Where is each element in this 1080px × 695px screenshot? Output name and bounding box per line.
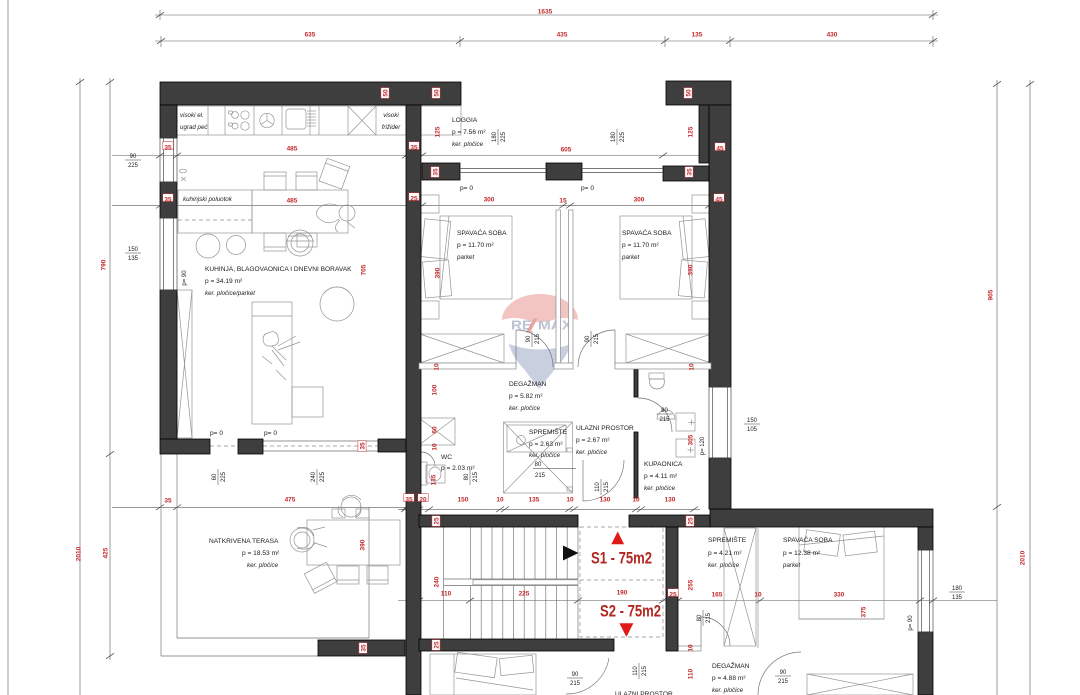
svg-text:60: 60 — [212, 473, 218, 480]
svg-text:180: 180 — [492, 131, 498, 142]
svg-text:135: 135 — [128, 256, 139, 262]
svg-text:225: 225 — [519, 590, 530, 597]
svg-text:50: 50 — [433, 89, 440, 97]
svg-text:25: 25 — [687, 517, 694, 525]
svg-text:150: 150 — [128, 247, 139, 253]
svg-text:10: 10 — [433, 363, 440, 371]
svg-text:300: 300 — [634, 196, 645, 203]
svg-text:p = 18.53 m²: p = 18.53 m² — [242, 550, 280, 557]
svg-text:p = 7.56 m²: p = 7.56 m² — [452, 129, 486, 136]
svg-text:45: 45 — [716, 145, 724, 152]
svg-text:KUPAONICA: KUPAONICA — [644, 461, 683, 468]
svg-text:ker. pločice: ker. pločice — [576, 449, 608, 456]
svg-text:35: 35 — [360, 644, 367, 652]
svg-text:390: 390 — [434, 267, 441, 278]
svg-text:2010: 2010 — [75, 546, 82, 561]
svg-text:180: 180 — [611, 131, 617, 142]
svg-text:215: 215 — [604, 481, 610, 492]
svg-text:150: 150 — [458, 496, 469, 503]
svg-text:105: 105 — [747, 427, 758, 433]
svg-text:DEGAŽMAN: DEGAŽMAN — [509, 379, 547, 388]
svg-text:80: 80 — [697, 614, 703, 621]
svg-text:330: 330 — [834, 591, 845, 598]
svg-text:20: 20 — [419, 496, 427, 503]
svg-text:10: 10 — [632, 496, 640, 503]
svg-text:10: 10 — [754, 591, 762, 598]
svg-text:50: 50 — [685, 89, 692, 97]
svg-text:35: 35 — [164, 144, 172, 151]
svg-text:225: 225 — [620, 131, 626, 142]
svg-text:110: 110 — [687, 668, 694, 679]
svg-text:215: 215 — [535, 473, 546, 479]
svg-text:90: 90 — [585, 335, 591, 342]
svg-text:35: 35 — [359, 442, 366, 450]
svg-text:ker. pločice: ker. pločice — [644, 485, 676, 492]
svg-text:NATKRIVENA TERASA: NATKRIVENA TERASA — [209, 538, 279, 545]
svg-text:SPAVAĆA SOBA: SPAVAĆA SOBA — [622, 228, 672, 237]
svg-text:p = 11.70 m²: p = 11.70 m² — [622, 242, 660, 249]
svg-text:visoki: visoki — [383, 112, 399, 119]
svg-text:90: 90 — [780, 670, 787, 676]
svg-text:90: 90 — [572, 672, 579, 678]
svg-text:135: 135 — [430, 474, 437, 485]
svg-text:390: 390 — [359, 539, 366, 550]
svg-text:DEGAŽMAN: DEGAŽMAN — [712, 661, 750, 670]
svg-text:100: 100 — [431, 384, 438, 395]
svg-text:p = 4.21 m²: p = 4.21 m² — [708, 550, 742, 557]
svg-text:215: 215 — [594, 333, 600, 344]
svg-text:125: 125 — [434, 126, 441, 137]
svg-text:p= 0: p= 0 — [581, 185, 594, 192]
svg-text:35: 35 — [405, 496, 413, 503]
svg-text:S1 - 75m2: S1 - 75m2 — [591, 550, 652, 568]
svg-text:35: 35 — [686, 168, 693, 176]
svg-text:ker. pločice/parket: ker. pločice/parket — [205, 290, 255, 297]
svg-text:905: 905 — [987, 289, 994, 300]
svg-text:ugrad peć: ugrad peć — [180, 124, 208, 131]
svg-text:110: 110 — [633, 666, 639, 676]
svg-text:485: 485 — [287, 145, 298, 152]
svg-text:190: 190 — [617, 589, 628, 596]
svg-text:ker. pločice: ker. pločice — [509, 405, 541, 412]
svg-text:frižider: frižider — [382, 124, 402, 131]
svg-text:110: 110 — [441, 590, 452, 597]
svg-text:375: 375 — [860, 606, 867, 617]
svg-text:ULAZNI PROSTOR: ULAZNI PROSTOR — [615, 691, 673, 695]
svg-text:p= 0: p= 0 — [460, 185, 473, 192]
svg-text:135: 135 — [692, 31, 703, 38]
svg-text:ULAZNI PROSTOR: ULAZNI PROSTOR — [576, 425, 634, 432]
svg-text:215: 215 — [778, 679, 789, 685]
svg-text:305: 305 — [687, 434, 694, 445]
svg-text:25: 25 — [669, 591, 677, 598]
svg-text:90: 90 — [130, 154, 137, 160]
svg-text:225: 225 — [501, 131, 507, 142]
svg-text:425: 425 — [102, 547, 109, 558]
svg-text:SPREMIŠTE: SPREMIŠTE — [708, 535, 747, 544]
svg-text:ker. pločice: ker. pločice — [708, 562, 740, 569]
svg-text:150: 150 — [747, 418, 758, 424]
svg-text:215: 215 — [535, 333, 541, 344]
svg-text:10: 10 — [688, 363, 695, 371]
svg-text:35: 35 — [164, 196, 172, 203]
svg-text:ker. pločice: ker. pločice — [247, 562, 279, 569]
svg-text:p = 5.82 m²: p = 5.82 m² — [509, 393, 543, 400]
svg-text:435: 435 — [557, 31, 568, 38]
svg-text:90: 90 — [526, 335, 532, 342]
svg-text:215: 215 — [642, 665, 648, 676]
svg-text:705: 705 — [360, 264, 367, 275]
svg-text:180: 180 — [952, 586, 963, 592]
svg-text:790: 790 — [100, 259, 107, 270]
svg-text:60: 60 — [431, 426, 438, 434]
svg-text:215: 215 — [473, 471, 479, 482]
svg-text:635: 635 — [305, 31, 316, 38]
svg-text:240: 240 — [311, 471, 317, 482]
svg-text:SPAVAĆA SOBA: SPAVAĆA SOBA — [783, 535, 833, 544]
svg-text:parket: parket — [456, 254, 474, 261]
svg-text:110: 110 — [595, 482, 601, 492]
svg-text:kuhinjski poluotok: kuhinjski poluotok — [183, 196, 233, 203]
svg-text:300: 300 — [484, 196, 495, 203]
svg-text:485: 485 — [287, 197, 298, 204]
svg-text:35: 35 — [410, 144, 418, 151]
svg-text:visoki el.: visoki el. — [180, 112, 204, 119]
svg-text:p = 4.11 m²: p = 4.11 m² — [644, 473, 678, 480]
svg-text:MAX: MAX — [538, 318, 572, 333]
svg-text:LOGGIA: LOGGIA — [452, 117, 478, 124]
svg-text:25: 25 — [410, 195, 418, 202]
svg-text:1635: 1635 — [538, 8, 553, 15]
svg-text:parket: parket — [621, 254, 639, 261]
svg-text:ker. pločice: ker. pločice — [712, 687, 744, 694]
svg-text:2010: 2010 — [1019, 550, 1026, 565]
svg-text:25: 25 — [433, 641, 440, 649]
svg-text:10: 10 — [566, 496, 574, 503]
svg-text:225: 225 — [320, 471, 326, 482]
svg-text:15: 15 — [559, 197, 567, 204]
svg-text:80: 80 — [535, 462, 542, 468]
svg-text:35: 35 — [432, 168, 439, 176]
svg-text:p = 4.88 m²: p = 4.88 m² — [712, 675, 746, 682]
svg-text:WC: WC — [441, 454, 452, 461]
svg-text:215: 215 — [570, 681, 581, 687]
svg-text:225: 225 — [221, 471, 227, 482]
svg-text:p = 34.19 m²: p = 34.19 m² — [205, 278, 243, 285]
svg-text:p= 90: p= 90 — [908, 615, 914, 631]
svg-text:165: 165 — [712, 591, 723, 598]
svg-text:390: 390 — [687, 264, 694, 275]
svg-text:130: 130 — [665, 496, 676, 503]
svg-text:125: 125 — [687, 126, 694, 137]
svg-text:255: 255 — [687, 579, 694, 590]
svg-text:p = 2.67 m²: p = 2.67 m² — [576, 437, 610, 444]
svg-text:ker. pločice: ker. pločice — [529, 452, 561, 459]
svg-text:p = 11.70 m²: p = 11.70 m² — [457, 242, 495, 249]
svg-text:80: 80 — [464, 473, 470, 480]
svg-text:215: 215 — [659, 417, 670, 423]
svg-text:135: 135 — [952, 595, 963, 601]
svg-text:p= 0: p= 0 — [210, 430, 223, 437]
svg-text:430: 430 — [827, 31, 838, 38]
svg-text:135: 135 — [529, 496, 540, 503]
svg-text:80: 80 — [661, 408, 668, 414]
svg-text:215: 215 — [706, 612, 712, 623]
svg-text:605: 605 — [561, 146, 572, 153]
svg-text:ker. pločice: ker. pločice — [452, 141, 484, 148]
svg-text:10: 10 — [687, 644, 694, 652]
svg-text:p = 2.63 m²: p = 2.63 m² — [529, 441, 563, 448]
svg-text:240: 240 — [433, 576, 440, 587]
svg-text:475: 475 — [285, 496, 296, 503]
svg-text:SPAVAĆA SOBA: SPAVAĆA SOBA — [457, 228, 507, 237]
svg-text:parket: parket — [782, 562, 800, 569]
svg-text:45: 45 — [715, 196, 723, 203]
svg-text:10: 10 — [496, 496, 504, 503]
svg-text:S2 - 75m2: S2 - 75m2 — [600, 603, 661, 621]
svg-text:SPREMIŠTE: SPREMIŠTE — [529, 427, 568, 436]
svg-text:p= 90: p= 90 — [182, 270, 188, 286]
svg-text:50: 50 — [382, 89, 389, 97]
svg-text:p= 0: p= 0 — [264, 430, 277, 437]
svg-text:p= 120: p= 120 — [700, 436, 706, 455]
svg-text:225: 225 — [128, 163, 139, 169]
svg-text:KUHINJA, BLAGOVAONICA I DNEVNI: KUHINJA, BLAGOVAONICA I DNEVNI BORAVAK — [205, 266, 352, 273]
svg-text:10: 10 — [431, 443, 438, 451]
svg-text:p = 12.38 m²: p = 12.38 m² — [783, 550, 821, 557]
svg-text:25: 25 — [433, 517, 440, 525]
svg-text:35: 35 — [164, 497, 172, 504]
svg-text:130: 130 — [600, 496, 611, 503]
